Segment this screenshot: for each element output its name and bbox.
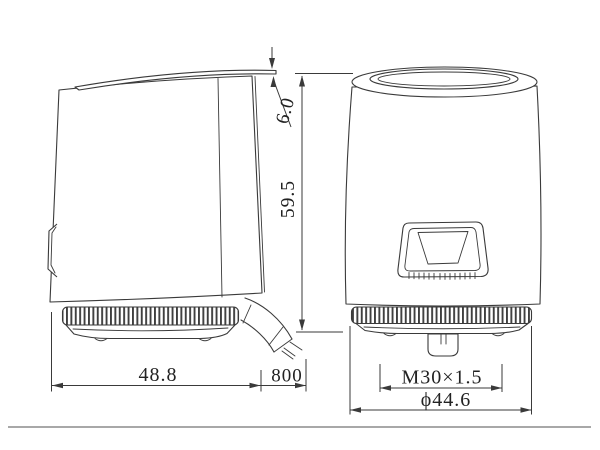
dim-cable-length: 800 [261,359,307,392]
dim-total-height-label: 59.5 [278,180,299,218]
dim-thread-arrow-right [491,385,502,391]
front-view [345,67,541,356]
cable [241,298,302,359]
cable-outer-edge [245,298,292,339]
dim-width-arrow-right [250,383,261,389]
drawing-canvas: 6.0 59.5 48.8 800 [0,0,600,450]
dim-cable-length-label: 800 [271,366,303,387]
dim-height-arrow-top [299,76,305,87]
side-body-outline [50,76,262,302]
front-knurl-ring [352,307,532,324]
dim-diameter-arrow-right [521,407,532,413]
dim-cap-arrow-down [269,58,275,69]
dim-diameter-label: ϕ44.6 [421,389,472,411]
cable-wire-2 [290,342,302,350]
dim-body-width-label: 48.8 [139,364,178,386]
cable-ferrule-line1 [269,327,283,345]
dim-thread-label: M30×1.5 [401,367,482,389]
cable-wire-1 [282,348,295,359]
dim-height-arrow-bottom [299,320,305,331]
dim-diameter-arrow-left [350,407,361,413]
cable-inner-edge [241,320,274,352]
window-outer-frame [398,222,488,277]
cable-ferrule-line2 [274,339,292,352]
indicator-window [398,222,488,279]
dim-width-arrow-left [52,383,63,389]
dim-cap-height-label: 6.0 [272,95,299,126]
dim-cap-height: 6.0 [269,47,299,127]
side-view [48,70,302,359]
dim-thread-arrow-left [380,385,391,391]
technical-drawing: 6.0 59.5 48.8 800 [0,0,600,450]
side-base-pan [66,325,235,339]
cable-gland-line [243,305,251,323]
dim-thread: M30×1.5 [380,364,502,392]
side-knurl-ring [63,307,239,325]
plunger-stem [428,334,458,356]
